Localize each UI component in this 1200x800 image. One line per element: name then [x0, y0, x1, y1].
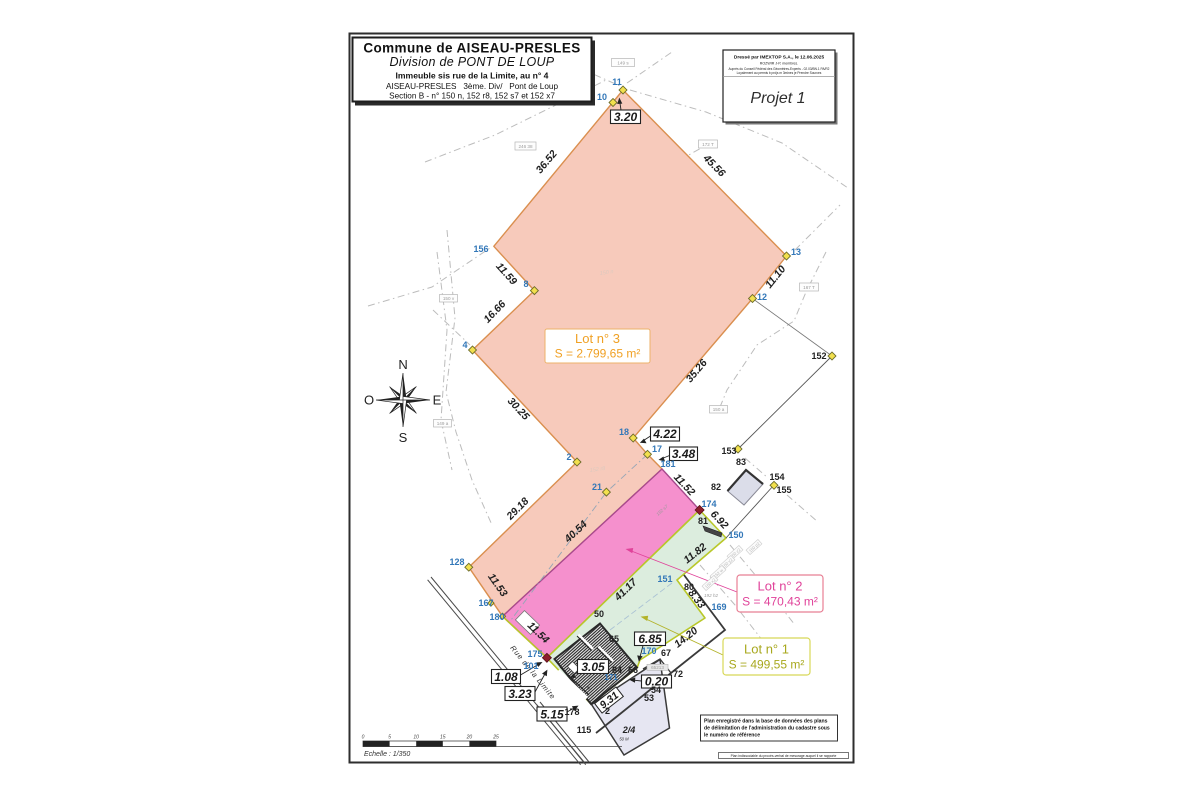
svg-text:178: 178: [564, 707, 579, 717]
svg-text:Loyalement au permis b prójs m: Loyalement au permis b prójs m 3mines je…: [737, 71, 822, 75]
svg-text:66: 66: [628, 665, 638, 675]
svg-text:169: 169: [711, 602, 726, 612]
svg-text:167: 167: [478, 598, 493, 608]
svg-text:152: 152: [811, 351, 826, 361]
svg-text:172 T: 172 T: [702, 142, 714, 147]
svg-text:Immeuble sis rue de la Limite,: Immeuble sis rue de la Limite, au n° 4: [396, 71, 549, 81]
svg-text:3.05: 3.05: [581, 660, 605, 674]
svg-text:Commune de AISEAU-PRESLES: Commune de AISEAU-PRESLES: [363, 41, 580, 56]
svg-text:154: 154: [769, 472, 784, 482]
svg-text:O: O: [364, 393, 374, 408]
svg-text:Lot n° 3: Lot n° 3: [575, 331, 620, 346]
svg-text:0: 0: [362, 735, 365, 741]
svg-text:ROZWIR J-P, membres.: ROZWIR J-P, membres.: [760, 62, 798, 66]
svg-text:82: 82: [711, 482, 721, 492]
svg-text:5: 5: [388, 735, 391, 741]
svg-text:2: 2: [605, 706, 610, 716]
svg-text:150: 150: [728, 530, 743, 540]
svg-text:Lot n° 2: Lot n° 2: [758, 579, 803, 594]
svg-text:le numéro de référence: le numéro de référence: [704, 733, 760, 739]
svg-text:8: 8: [523, 279, 528, 289]
svg-text:180: 180: [489, 612, 504, 622]
svg-text:175: 175: [527, 649, 542, 659]
svg-text:17: 17: [652, 444, 662, 454]
svg-text:156: 156: [473, 244, 488, 254]
svg-text:2: 2: [566, 452, 571, 462]
svg-text:2/4: 2/4: [622, 725, 636, 735]
svg-text:54: 54: [651, 685, 661, 695]
svg-text:153: 153: [721, 446, 736, 456]
svg-text:20: 20: [466, 735, 473, 741]
svg-text:149 a: 149 a: [437, 421, 449, 426]
svg-text:83: 83: [736, 457, 746, 467]
svg-text:4.22: 4.22: [652, 427, 677, 441]
svg-text:12: 12: [757, 292, 767, 302]
svg-text:50 M: 50 M: [619, 737, 629, 742]
svg-text:AISEAU-PRESLES 3ème. Div/: AISEAU-PRESLES 3ème. Div/ Pont de Loup: [386, 82, 558, 91]
svg-text:Plan enregistré dans la base d: Plan enregistré dans la base de données …: [704, 719, 828, 725]
svg-text:149 s: 149 s: [617, 61, 629, 66]
svg-text:Dressé par IMEXTOP S.A., le 12: Dressé par IMEXTOP S.A., le 12.06.2025: [734, 55, 825, 61]
svg-text:S = 470,43 m²: S = 470,43 m²: [742, 595, 818, 609]
svg-text:1.08: 1.08: [494, 670, 518, 684]
svg-text:Projet 1: Projet 1: [750, 90, 805, 107]
svg-text:4: 4: [462, 340, 467, 350]
svg-text:65213: 65213: [651, 665, 664, 670]
svg-text:Division de PONT DE LOUP: Division de PONT DE LOUP: [390, 55, 555, 69]
svg-text:150 v: 150 v: [443, 296, 455, 301]
svg-text:25: 25: [492, 735, 499, 741]
svg-text:50: 50: [594, 609, 604, 619]
svg-text:3.20: 3.20: [614, 110, 638, 124]
svg-text:Section B - n° 150 n, 152 r8: Section B - n° 150 n, 152 r8, 152 s7 et …: [389, 92, 555, 101]
svg-text:128: 128: [449, 557, 464, 567]
svg-text:N: N: [398, 357, 407, 372]
svg-text:Lot n° 1: Lot n° 1: [744, 642, 789, 657]
svg-text:151: 151: [657, 574, 672, 584]
svg-text:81: 81: [698, 516, 708, 526]
svg-text:65: 65: [609, 634, 619, 644]
svg-text:21: 21: [592, 482, 602, 492]
svg-text:67: 67: [661, 648, 671, 658]
svg-text:155: 155: [776, 485, 791, 495]
svg-text:174: 174: [701, 499, 716, 509]
svg-text:170: 170: [641, 646, 656, 656]
svg-text:192 h2: 192 h2: [704, 593, 718, 598]
svg-text:de délimitation de l'administr: de délimitation de l'administration du c…: [704, 726, 830, 732]
svg-text:84: 84: [612, 665, 622, 675]
svg-text:115: 115: [577, 725, 592, 735]
svg-text:10: 10: [597, 92, 607, 102]
svg-text:6.85: 6.85: [638, 632, 662, 646]
svg-text:181: 181: [660, 459, 675, 469]
svg-text:Plan indissociable du procès-v: Plan indissociable du procès-verbal de m…: [731, 754, 837, 758]
svg-text:80: 80: [684, 582, 694, 592]
svg-text:150 a: 150 a: [713, 407, 725, 412]
svg-text:S = 2.799,65 m²: S = 2.799,65 m²: [555, 347, 641, 361]
svg-text:11: 11: [612, 77, 622, 87]
svg-text:S: S: [399, 430, 408, 445]
svg-text:E: E: [433, 393, 442, 408]
svg-text:13: 13: [791, 247, 801, 257]
svg-text:15: 15: [440, 735, 446, 741]
svg-text:167 T: 167 T: [803, 285, 815, 290]
svg-text:3.23: 3.23: [508, 687, 532, 701]
svg-text:18: 18: [619, 427, 629, 437]
svg-text:5.15: 5.15: [540, 707, 564, 721]
svg-text:10: 10: [413, 735, 419, 741]
svg-text:246 38: 246 38: [518, 144, 532, 149]
svg-text:101: 101: [523, 661, 538, 671]
svg-text:Echelle : 1/350: Echelle : 1/350: [364, 751, 410, 758]
svg-text:72: 72: [673, 669, 683, 679]
svg-text:S = 499,55 m²: S = 499,55 m²: [729, 658, 805, 672]
